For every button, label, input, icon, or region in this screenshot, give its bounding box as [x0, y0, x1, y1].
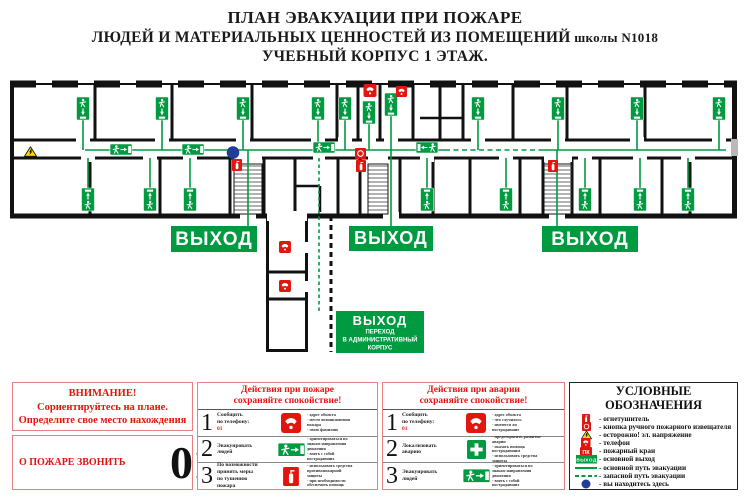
action-text: Сообщить по телефону:01 [402, 412, 460, 433]
voltage-warning-icon [25, 147, 37, 157]
transition-exit-line3: В АДМИНИСТРАТИВНЫЙ [343, 336, 418, 344]
accident-action-row-3: 3 Эвакуировать людей - ориентироваться п… [383, 463, 564, 489]
extinguisher-icon [548, 160, 558, 172]
telephone-icon [364, 84, 377, 97]
action-notes: - предотвратить развитие аварии - оказат… [492, 435, 561, 464]
step-number: 3 [386, 464, 402, 488]
extinguisher-icon [275, 467, 307, 486]
fire-call-number: 01 [170, 440, 186, 486]
evacuation-routes [83, 115, 726, 311]
main-route-icon [573, 466, 599, 470]
fire-action-row-3: 3 По возможности принять меры по тушению… [198, 463, 377, 489]
attention-panel: ВНИМАНИЕ! Сориентируйтесь на плане. Опре… [12, 382, 193, 431]
accident-action-row-1: 1 Сообщить по телефону:01 - адрес объект… [383, 410, 564, 437]
accident-actions-panel: Действия при аварии сохраняйте спокойств… [382, 382, 565, 490]
fire-action-row-1: 1 Сообщить по телефону:01 - адрес объект… [198, 410, 377, 437]
fire-actions-title: Действия при пожаре сохраняйте спокойств… [198, 383, 377, 410]
action-notes: - использовать средства противопожарной … [307, 464, 374, 488]
phone-number-01: 01 [217, 426, 275, 433]
legend-panel: УСЛОВНЫЕ ОБОЗНАЧЕНИЯ - огнетушитель - кн… [569, 382, 738, 490]
action-text: По возможности принять меры по тушению п… [217, 462, 275, 490]
exit-sign-icon [460, 469, 492, 483]
exit-banner-3-label: ВЫХОД [551, 229, 629, 250]
action-notes: - ориентироваться по знакам направления … [492, 464, 561, 488]
telephone-icon [396, 86, 407, 97]
exit-banners: ВЫХОД ВЫХОД ВЫХОД ВЫХОД ПЕРЕХОД В АДМИНИ… [171, 226, 638, 353]
step-number: 2 [386, 437, 402, 461]
accident-actions-title: Действия при аварии сохраняйте спокойств… [383, 383, 564, 410]
fire-action-row-2: 2 Эвакуировать людей - ориентироваться п… [198, 437, 377, 464]
fire-actions-panel: Действия при пожаре сохраняйте спокойств… [197, 382, 378, 490]
phone-number-01: 01 [402, 426, 460, 433]
you-are-here-icon [573, 479, 599, 489]
fire-call-label: О ПОЖАРЕ ЗВОНИТЬ [19, 457, 170, 468]
transition-exit-line2: ПЕРЕХОД [365, 330, 395, 336]
legend-title: УСЛОВНЫЕ ОБОЗНАЧЕНИЯ [570, 384, 737, 415]
exit-sign-icon [275, 443, 307, 457]
step-number: 1 [201, 411, 217, 435]
reserve-route-icon [573, 474, 599, 478]
step-number: 1 [386, 411, 402, 435]
you-are-here-icon [227, 146, 240, 159]
step-number: 2 [201, 437, 217, 461]
legend-row-you-are-here: - вы находитесь здесь [570, 480, 737, 488]
action-notes: - адрес объекта - место возникновения по… [307, 413, 374, 432]
extinguisher-icon [356, 160, 366, 172]
floor-plan: ВЫХОД ВЫХОД ВЫХОД ВЫХОД ПЕРЕХОД В АДМИНИ… [0, 0, 750, 380]
action-text: Локализовать аварию [402, 443, 460, 457]
legend-row-hydrant: ПК - пожарный кран [570, 447, 737, 455]
transition-exit-line1: ВЫХОД [353, 313, 408, 328]
action-notes: - ориентироваться по знакам направления … [307, 437, 374, 461]
attention-heading: ВНИМАНИЕ! [13, 387, 192, 401]
step-number: 3 [201, 464, 217, 488]
accident-action-row-2: 2 Локализовать аварию - предотвратить ра… [383, 437, 564, 464]
telephone-icon [279, 280, 291, 292]
attention-line2: Сориентируйтесь на плане. [13, 401, 192, 415]
action-notes: - адрес объекта - что случилось - имеютс… [492, 413, 561, 432]
action-text: Сообщить по телефону:01 [217, 412, 275, 433]
legend-row-main-route: - основной путь эвакуации [570, 464, 737, 472]
exit-banner-1-label: ВЫХОД [175, 229, 253, 250]
telephone-icon [460, 413, 492, 433]
extinguisher-icon [232, 159, 242, 171]
evacuation-plan-poster: ПЛАН ЭВАКУАЦИИ ПРИ ПОЖАРЕ ЛЮДЕЙ И МАТЕРИ… [0, 0, 750, 500]
action-text: Эвакуировать людей [217, 443, 275, 457]
transition-exit-line4: КОРПУС [368, 346, 393, 352]
attention-line3: Определите свое место нахождения [13, 414, 192, 428]
action-text: Эвакуировать людей [402, 469, 460, 483]
legend-row-main-exit: ВЫХОД - основной выход [570, 455, 737, 463]
telephone-icon [275, 413, 307, 433]
telephone-icon [279, 241, 291, 253]
exit-banner-2-label: ВЫХОД [354, 228, 428, 248]
main-exit-icon: ВЫХОД [573, 455, 599, 464]
fire-call-panel: О ПОЖАРЕ ЗВОНИТЬ 01 [12, 435, 193, 490]
first-aid-cross-icon [460, 440, 492, 459]
call-point-icon [355, 148, 366, 159]
